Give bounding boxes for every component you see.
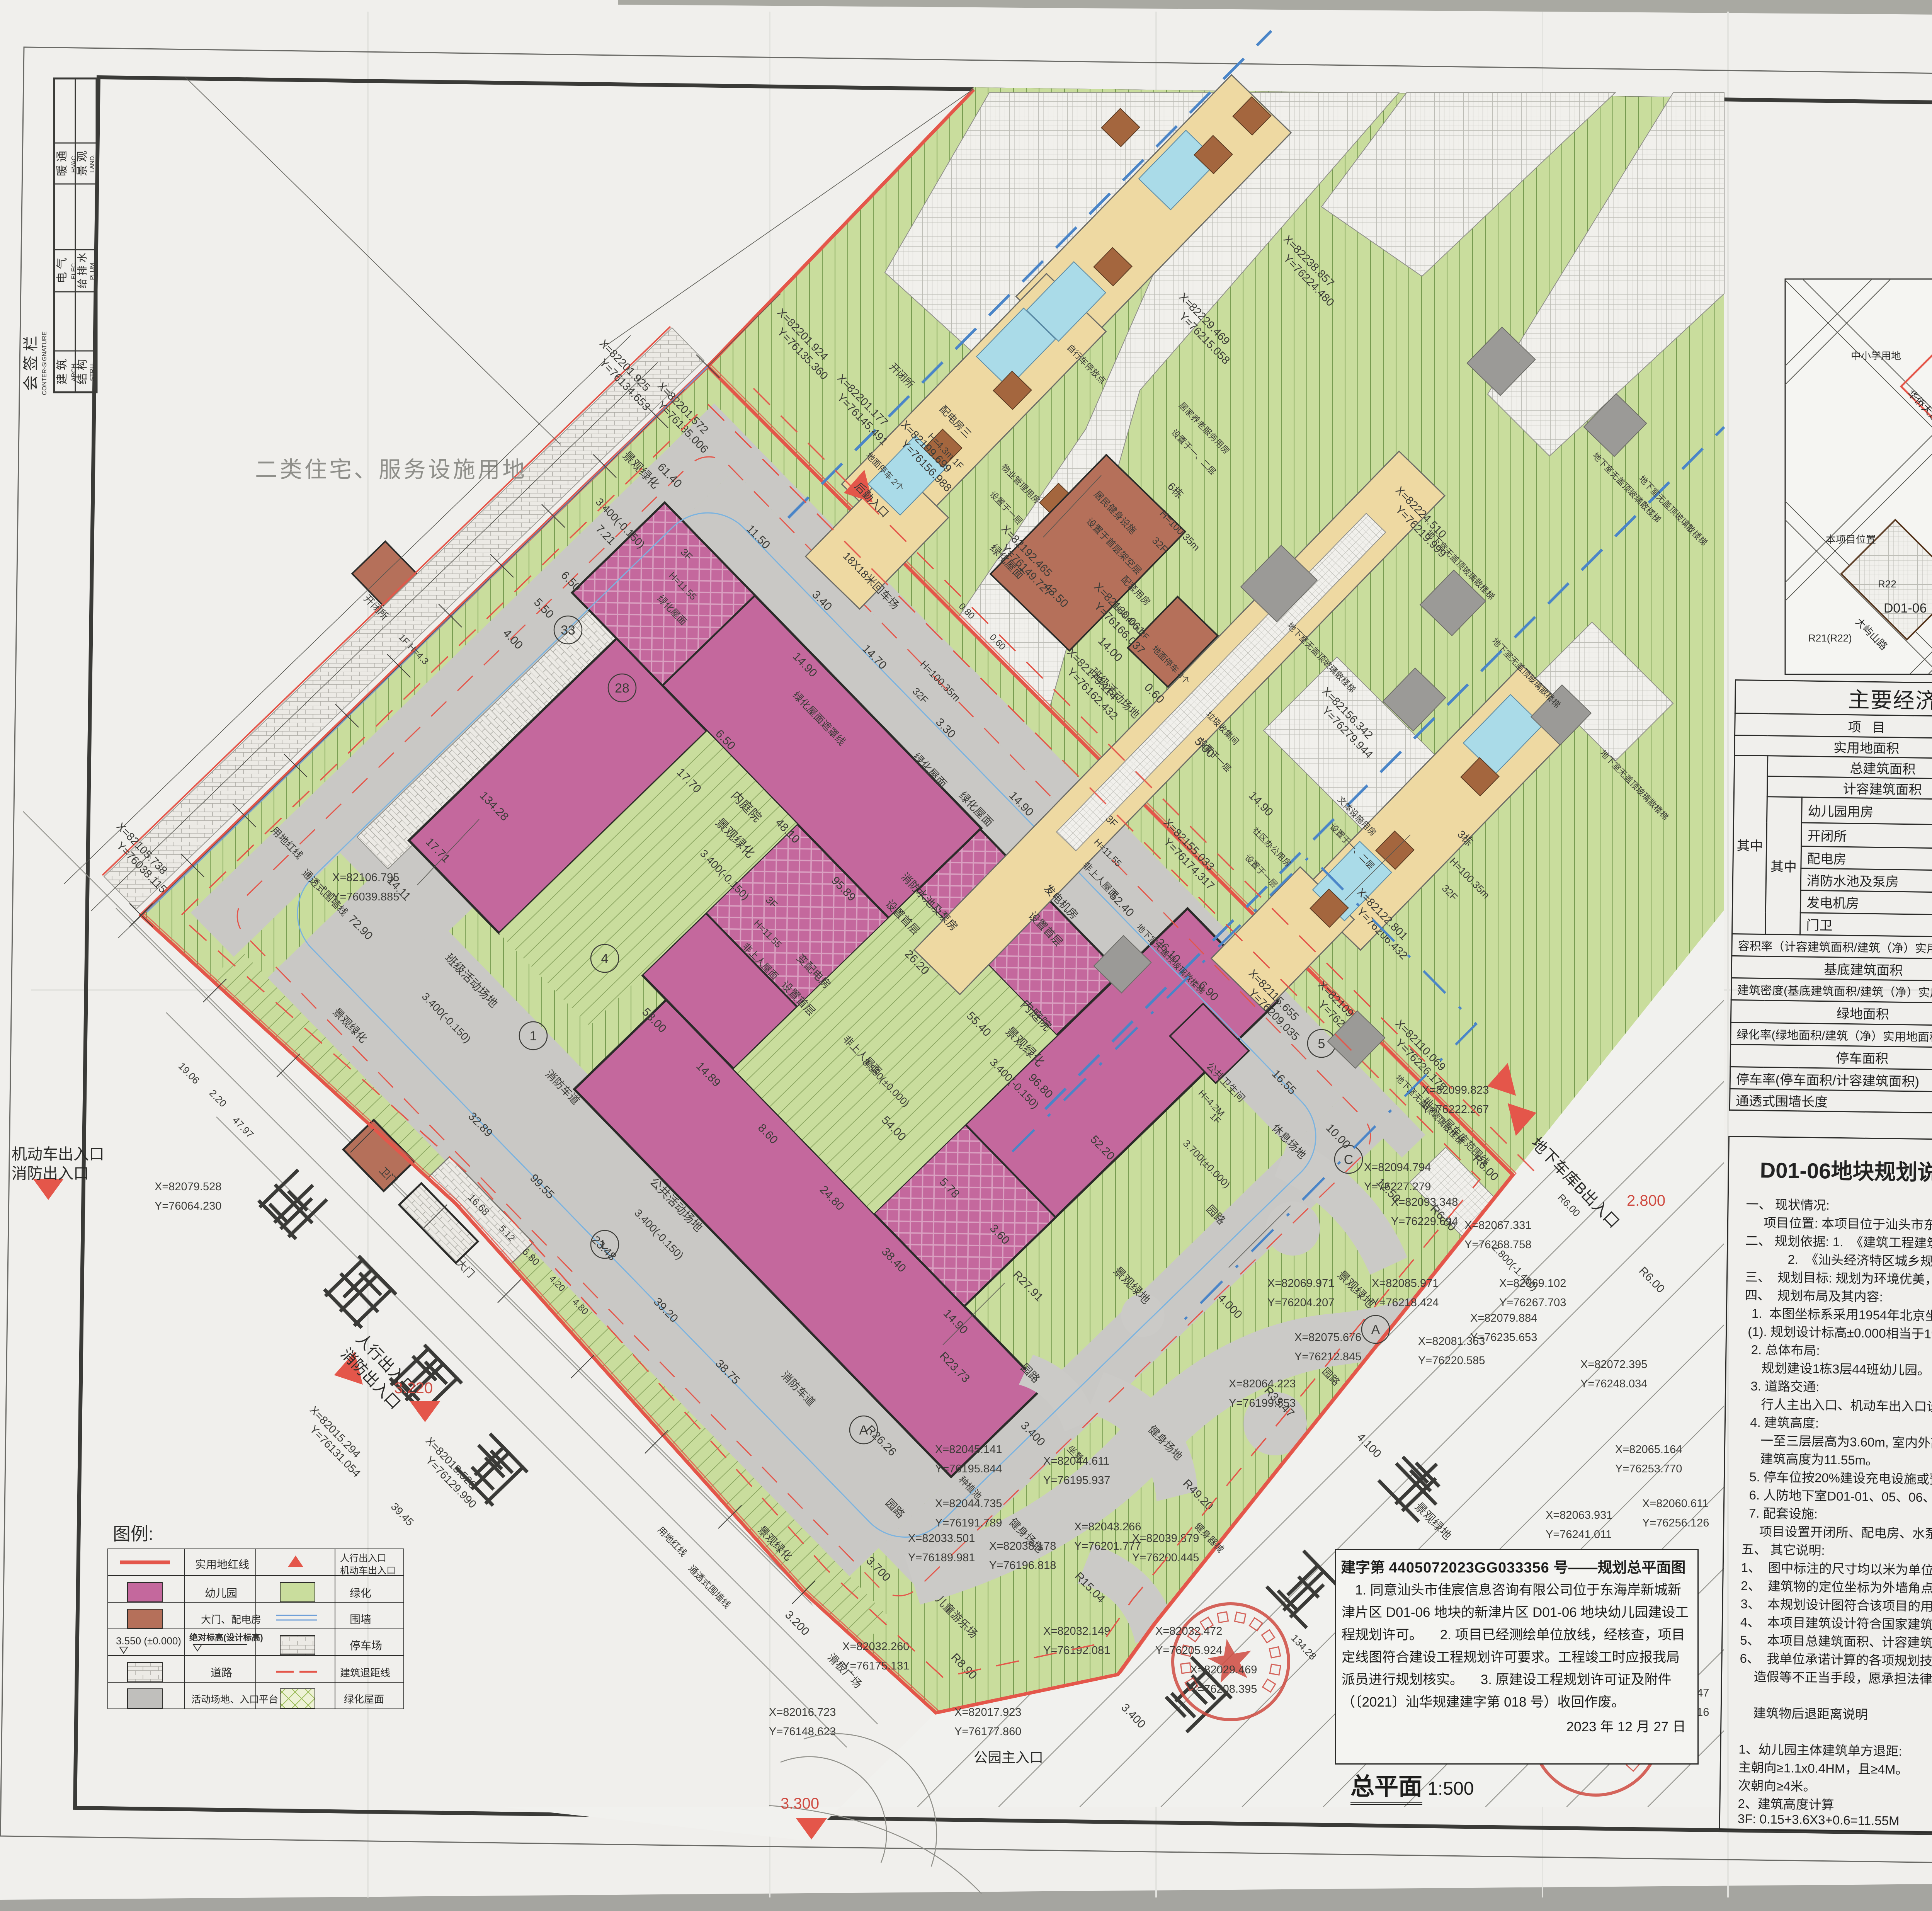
svg-text:幼儿园: 幼儿园 bbox=[205, 1587, 237, 1599]
svg-text:X=82065.164: X=82065.164 bbox=[1615, 1443, 1682, 1456]
svg-text:5: 5 bbox=[1318, 1036, 1325, 1051]
svg-text:建筑退距线: 建筑退距线 bbox=[340, 1667, 390, 1679]
svg-text:1: 1 bbox=[530, 1029, 537, 1043]
svg-text:X=82039.879: X=82039.879 bbox=[1132, 1532, 1199, 1545]
svg-text:Y=76267.703: Y=76267.703 bbox=[1499, 1297, 1566, 1309]
svg-text:X=82044.735: X=82044.735 bbox=[935, 1497, 1002, 1510]
svg-text:Y=76201.777: Y=76201.777 bbox=[1074, 1540, 1141, 1552]
svg-text:X=82075.676: X=82075.676 bbox=[1294, 1331, 1361, 1344]
svg-text:Y=76177.860: Y=76177.860 bbox=[954, 1726, 1021, 1738]
svg-text:X=82085.971: X=82085.971 bbox=[1372, 1277, 1439, 1290]
svg-text:Y=76192.081: Y=76192.081 bbox=[1043, 1644, 1110, 1657]
svg-text:结 构: 结 构 bbox=[76, 359, 88, 385]
svg-text:活动场地、入口平台: 活动场地、入口平台 bbox=[191, 1694, 278, 1705]
svg-text:2.20: 2.20 bbox=[207, 1087, 229, 1109]
svg-text:本项目位置: 本项目位置 bbox=[1826, 534, 1876, 545]
svg-text:33: 33 bbox=[561, 623, 575, 638]
svg-text:暖 通: 暖 通 bbox=[56, 151, 68, 176]
svg-text:Y=76256.126: Y=76256.126 bbox=[1642, 1517, 1709, 1529]
svg-text:图例:: 图例: bbox=[113, 1524, 153, 1544]
svg-text:绝对标高(设计标高): 绝对标高(设计标高) bbox=[189, 1633, 263, 1642]
svg-text:公园主入口: 公园主入口 bbox=[974, 1749, 1043, 1765]
svg-text:STRU.: STRU. bbox=[89, 362, 96, 381]
svg-text:X=82033.501: X=82033.501 bbox=[908, 1532, 975, 1545]
svg-text:X=82038.178: X=82038.178 bbox=[989, 1540, 1056, 1552]
svg-text:Y=76241.011: Y=76241.011 bbox=[1546, 1528, 1612, 1541]
svg-text:会 签 栏: 会 签 栏 bbox=[22, 336, 39, 391]
svg-text:Y=76235.653: Y=76235.653 bbox=[1470, 1331, 1537, 1344]
svg-text:D01-06: D01-06 bbox=[1884, 601, 1927, 616]
svg-text:中小学用地: 中小学用地 bbox=[1851, 350, 1901, 362]
svg-text:19.06: 19.06 bbox=[176, 1060, 202, 1086]
svg-text:A: A bbox=[1371, 1322, 1380, 1337]
svg-text:Y=76200.445: Y=76200.445 bbox=[1132, 1552, 1199, 1564]
svg-text:2.800: 2.800 bbox=[1627, 1192, 1665, 1209]
svg-text:Y=76148.623: Y=76148.623 bbox=[769, 1726, 836, 1738]
svg-text:X=82032.260: X=82032.260 bbox=[842, 1640, 909, 1653]
svg-text:人行出入口: 人行出入口 bbox=[340, 1553, 386, 1564]
svg-text:X=82079.884: X=82079.884 bbox=[1470, 1312, 1537, 1324]
svg-text:Y=76248.034: Y=76248.034 bbox=[1580, 1378, 1647, 1390]
svg-text:Y=76196.818: Y=76196.818 bbox=[989, 1559, 1056, 1572]
svg-text:X=82063.931: X=82063.931 bbox=[1546, 1509, 1612, 1521]
svg-text:Y=76253.770: Y=76253.770 bbox=[1615, 1463, 1682, 1475]
svg-text:Y=76205.924: Y=76205.924 bbox=[1155, 1644, 1222, 1657]
svg-text:通透式围墙线: 通透式围墙线 bbox=[686, 1563, 733, 1610]
svg-text:X=82032.472: X=82032.472 bbox=[1155, 1625, 1222, 1637]
svg-text:实用地红线: 实用地红线 bbox=[195, 1559, 249, 1571]
svg-text:4: 4 bbox=[601, 951, 609, 966]
svg-text:X=82072.395: X=82072.395 bbox=[1580, 1358, 1647, 1371]
svg-text:Y=76195.844: Y=76195.844 bbox=[935, 1463, 1002, 1475]
svg-text:道路: 道路 bbox=[211, 1667, 232, 1679]
svg-text:LAND.: LAND. bbox=[89, 154, 96, 172]
svg-text:Y=76220.585: Y=76220.585 bbox=[1418, 1355, 1485, 1367]
svg-text:X=82017.923: X=82017.923 bbox=[954, 1706, 1021, 1719]
svg-text:CONTER-SIGNATURE: CONTER-SIGNATURE bbox=[41, 331, 48, 395]
svg-text:3.550 (±0.000): 3.550 (±0.000) bbox=[116, 1635, 181, 1647]
svg-text:X=82060.611: X=82060.611 bbox=[1642, 1497, 1708, 1510]
svg-text:X=82016.723: X=82016.723 bbox=[769, 1706, 836, 1719]
svg-text:X=82032.149: X=82032.149 bbox=[1043, 1625, 1110, 1637]
svg-text:绿化: 绿化 bbox=[350, 1587, 371, 1599]
svg-text:3.300: 3.300 bbox=[781, 1795, 819, 1812]
svg-text:X=82064.223: X=82064.223 bbox=[1229, 1378, 1296, 1390]
svg-text:机动车出入口: 机动车出入口 bbox=[12, 1146, 104, 1163]
svg-text:X=82045.141: X=82045.141 bbox=[935, 1443, 1002, 1456]
svg-text:Y=76189.981: Y=76189.981 bbox=[908, 1552, 975, 1564]
svg-text:C: C bbox=[1344, 1152, 1354, 1167]
svg-text:Y=76212.845: Y=76212.845 bbox=[1294, 1351, 1361, 1363]
svg-text:围墙: 围墙 bbox=[350, 1613, 371, 1625]
svg-text:二类住宅、服务设施用地: 二类住宅、服务设施用地 bbox=[255, 457, 527, 482]
svg-text:Y=76208.395: Y=76208.395 bbox=[1190, 1683, 1257, 1695]
svg-text:L: L bbox=[601, 1237, 609, 1252]
svg-text:绿化屋面: 绿化屋面 bbox=[344, 1693, 384, 1705]
svg-text:X=82069.971: X=82069.971 bbox=[1267, 1277, 1334, 1290]
svg-text:机动车出入口: 机动车出入口 bbox=[340, 1566, 396, 1576]
svg-text:X=82094.794: X=82094.794 bbox=[1364, 1161, 1431, 1174]
svg-text:A: A bbox=[859, 1423, 868, 1438]
svg-text:28: 28 bbox=[615, 681, 629, 696]
svg-text:景 观: 景 观 bbox=[76, 151, 88, 176]
svg-text:X=82043.266: X=82043.266 bbox=[1074, 1521, 1141, 1533]
svg-text:消防出入口: 消防出入口 bbox=[12, 1165, 89, 1182]
svg-text:给 排 水: 给 排 水 bbox=[77, 253, 88, 288]
svg-text:停车场: 停车场 bbox=[350, 1640, 382, 1652]
svg-text:3.220: 3.220 bbox=[394, 1380, 433, 1397]
svg-text:47.97: 47.97 bbox=[230, 1114, 256, 1140]
svg-text:X=82029.469: X=82029.469 bbox=[1190, 1664, 1257, 1676]
svg-text:X=82079.528: X=82079.528 bbox=[155, 1181, 221, 1193]
svg-text:Y=76195.937: Y=76195.937 bbox=[1043, 1474, 1110, 1487]
svg-text:R21(R22): R21(R22) bbox=[1808, 632, 1852, 644]
svg-text:Y=76204.207: Y=76204.207 bbox=[1267, 1297, 1334, 1309]
svg-text:PLUM.: PLUM. bbox=[89, 261, 96, 280]
svg-text:大门、配电房: 大门、配电房 bbox=[201, 1614, 261, 1625]
svg-text:Y=76191.789: Y=76191.789 bbox=[935, 1517, 1002, 1529]
svg-text:39.45: 39.45 bbox=[389, 1501, 416, 1528]
svg-text:电 气: 电 气 bbox=[56, 258, 68, 283]
svg-text:X=82067.331: X=82067.331 bbox=[1464, 1219, 1531, 1232]
svg-text:R22: R22 bbox=[1878, 578, 1896, 590]
svg-text:Y=76039.885: Y=76039.885 bbox=[332, 891, 399, 903]
svg-text:X=82099.823: X=82099.823 bbox=[1422, 1084, 1489, 1096]
svg-text:Y=76064.230: Y=76064.230 bbox=[155, 1200, 221, 1212]
svg-text:建 筑: 建 筑 bbox=[56, 359, 68, 385]
